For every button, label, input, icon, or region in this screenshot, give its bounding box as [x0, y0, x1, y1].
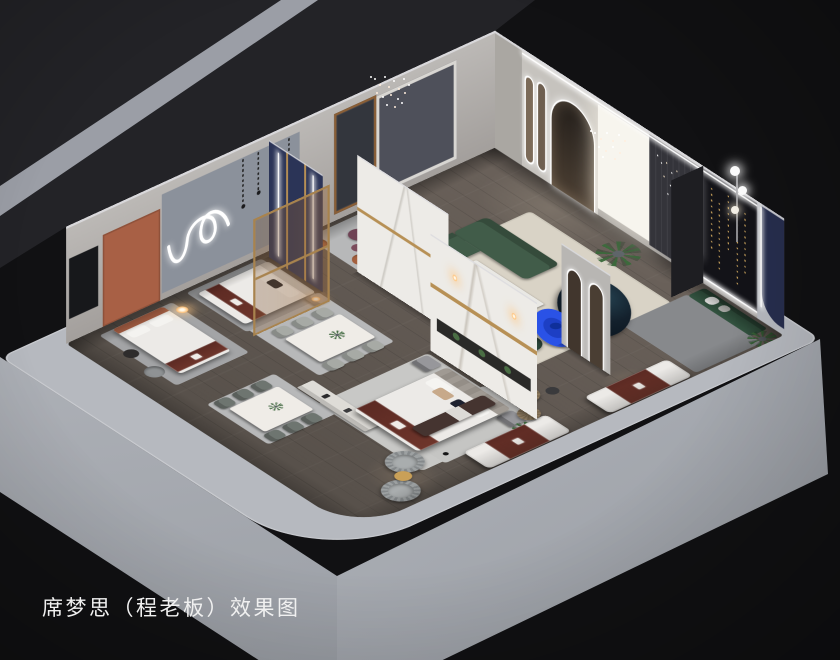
- floor-lamp-globes: [726, 160, 750, 244]
- pendant-cord: [258, 152, 259, 191]
- sconce-light: [511, 311, 516, 321]
- navy-corner-inset: [762, 204, 784, 329]
- navy-corner-panel: [757, 201, 784, 336]
- glass-mullion: [255, 245, 327, 280]
- sparkle-cluster: [370, 76, 372, 78]
- oval-mirror-1: [525, 73, 535, 166]
- pouf-side-table: [543, 385, 563, 396]
- lamp-globe: [730, 166, 740, 176]
- crystal-chandelier-1: [368, 70, 412, 106]
- arch-mirror-2: [589, 279, 604, 371]
- lamp-stem: [736, 168, 738, 242]
- wall-ne-seg-plain: [495, 31, 522, 166]
- lamp-globe: [738, 186, 747, 195]
- caption-text: 席梦思（程老板）效果图: [42, 592, 301, 622]
- dark-tv-panel: [69, 245, 98, 319]
- led-navy-corner: [760, 206, 761, 307]
- gold-string-light: [711, 188, 712, 252]
- sparkle-cluster: [590, 130, 592, 132]
- lamp-globe: [731, 206, 739, 214]
- crystal-lights: [657, 154, 658, 157]
- oval-mirror-2: [537, 80, 547, 175]
- crystal-chandelier-2: [588, 126, 628, 158]
- sconce-light: [452, 273, 457, 283]
- gold-string-light: [719, 203, 720, 271]
- pendant-cord: [243, 159, 244, 205]
- arch-mirror-1: [567, 265, 582, 357]
- partition-gallery-divider: [671, 166, 703, 298]
- showroom-render: 席梦思（程老板）效果图: [0, 0, 840, 660]
